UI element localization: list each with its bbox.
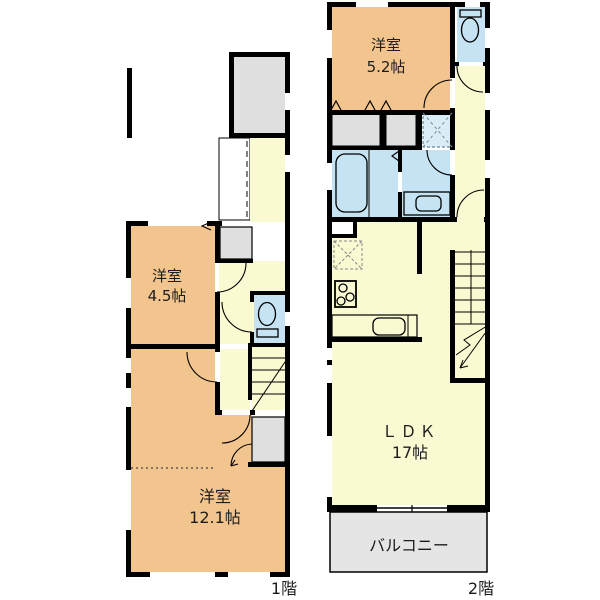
closet-2f-a bbox=[332, 114, 380, 146]
floorplan-svg: 洋室 4.5帖 洋室 12.1帖 1階 bbox=[0, 0, 600, 600]
refrigerator-space-icon bbox=[332, 222, 353, 234]
room-4-5 bbox=[131, 226, 215, 344]
room-12-1-size: 12.1帖 bbox=[189, 508, 241, 527]
floor2-plan: 洋室 5.2帖 ＬＤＫ 17帖 バルコニー 2階 bbox=[327, 2, 494, 598]
room-5-2-size: 5.2帖 bbox=[367, 58, 406, 76]
balcony-door bbox=[377, 505, 447, 512]
entrance-hall bbox=[219, 138, 250, 220]
stairs-1f-area bbox=[252, 347, 285, 410]
hallway-upper bbox=[250, 138, 285, 222]
floor1-label: 1階 bbox=[271, 579, 297, 598]
room-12-1-name: 洋室 bbox=[199, 487, 231, 506]
washroom bbox=[402, 150, 450, 217]
room-4-5-size: 4.5帖 bbox=[148, 287, 187, 305]
ldk-size: 17帖 bbox=[392, 443, 428, 462]
ldk-name: ＬＤＫ bbox=[381, 422, 438, 441]
balcony-label: バルコニー bbox=[369, 536, 449, 555]
room-4-5-name: 洋室 bbox=[152, 267, 182, 285]
room-5-2-name: 洋室 bbox=[371, 36, 401, 54]
closet-1f-bottom bbox=[252, 417, 285, 462]
bathroom bbox=[332, 150, 398, 217]
floor2-label: 2階 bbox=[468, 579, 494, 598]
floor1-plan: 洋室 4.5帖 洋室 12.1帖 1階 bbox=[126, 52, 297, 598]
floorplan-canvas: 洋室 4.5帖 洋室 12.1帖 1階 bbox=[0, 0, 600, 600]
hallway-2f bbox=[455, 66, 485, 222]
closet-1f-top bbox=[220, 227, 252, 259]
porch bbox=[234, 57, 285, 133]
hallway-lower bbox=[220, 349, 250, 410]
closet-2f-b bbox=[386, 114, 416, 146]
